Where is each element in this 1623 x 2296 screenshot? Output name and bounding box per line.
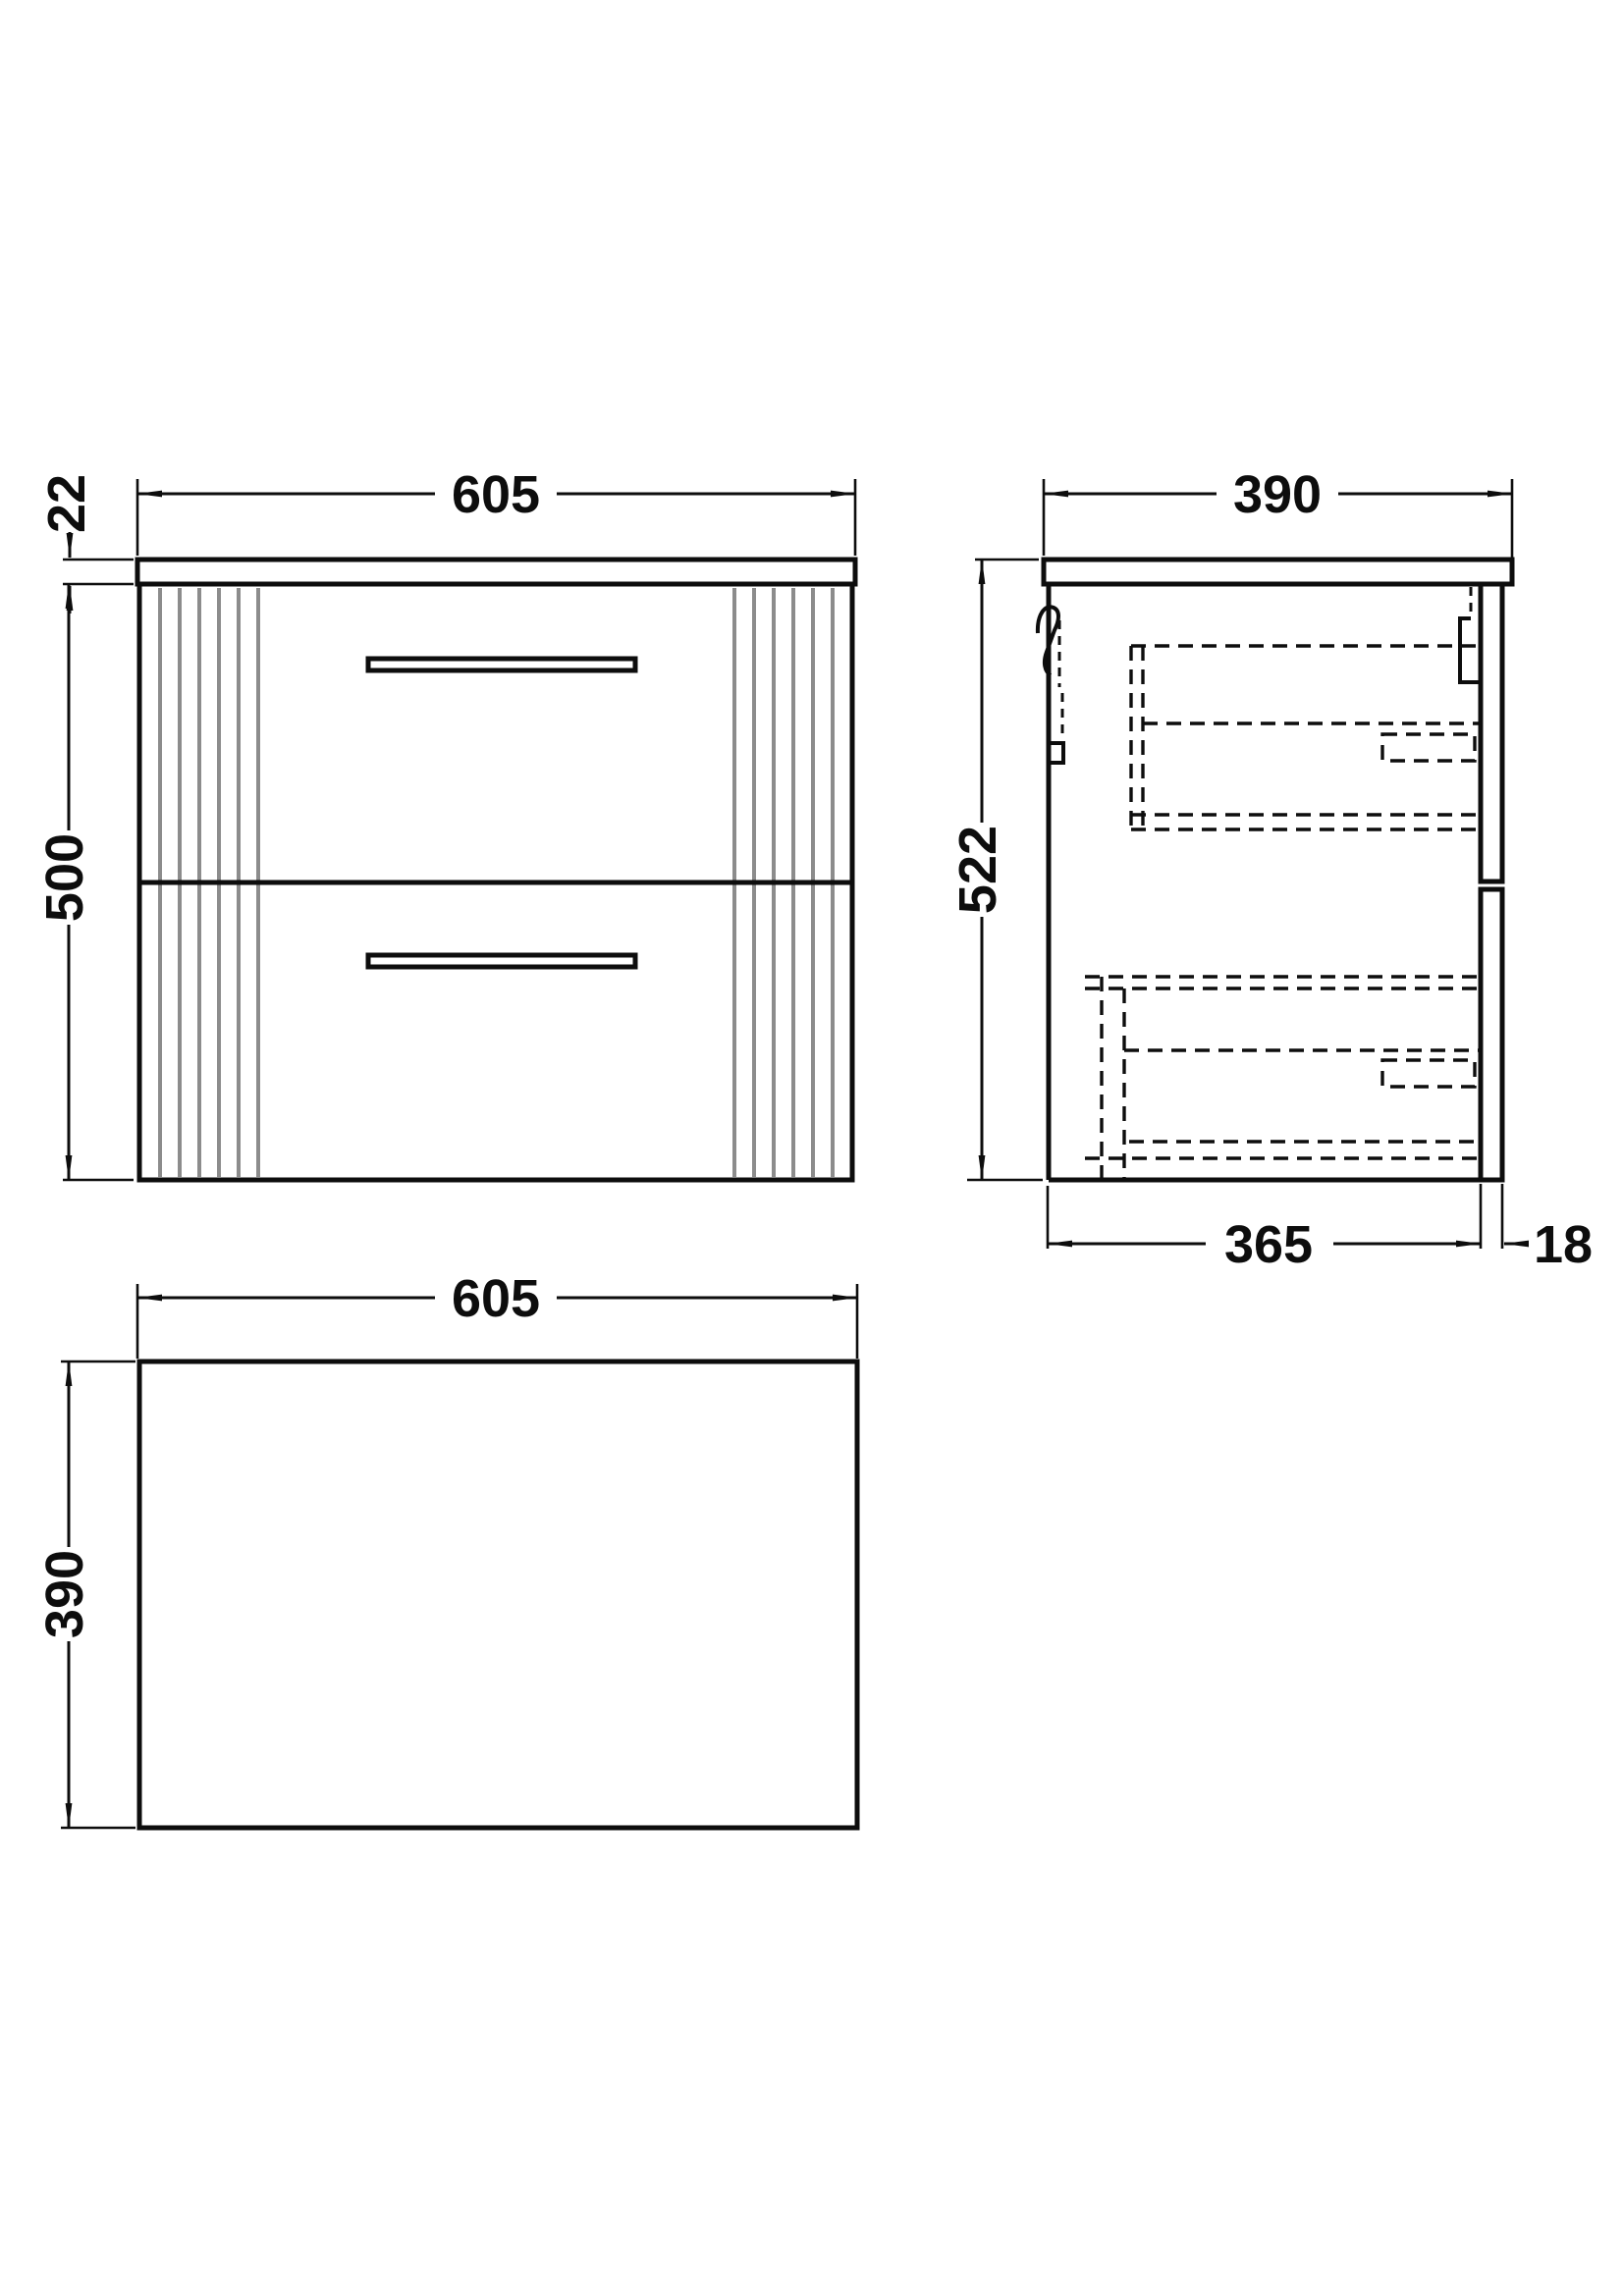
technical-drawing: 605 22 500 bbox=[0, 0, 1623, 2296]
plan-depth-dimension: 390 bbox=[35, 1362, 135, 1828]
front-worktop-thickness-dimension: 22 bbox=[37, 474, 134, 614]
side-upper-drawer-front bbox=[1481, 584, 1502, 881]
front-width-dimension: 605 bbox=[137, 465, 855, 556]
front-upper-drawer-handle bbox=[368, 659, 635, 670]
side-height-label: 522 bbox=[948, 826, 1007, 914]
front-view: 605 22 500 bbox=[35, 465, 855, 1180]
side-lower-drawer-hidden bbox=[1085, 977, 1481, 1178]
wall-hanger-bracket-hidden bbox=[1059, 620, 1062, 738]
side-body-depth-dimension: 365 bbox=[1048, 1184, 1502, 1274]
side-body-depth-label: 365 bbox=[1224, 1215, 1313, 1274]
side-upper-drawer-runner bbox=[1382, 734, 1475, 761]
side-lower-drawer-runner bbox=[1382, 1060, 1475, 1087]
front-height-label: 500 bbox=[35, 833, 94, 922]
side-worktop bbox=[1044, 560, 1512, 584]
plan-depth-label: 390 bbox=[35, 1550, 94, 1638]
front-worktop bbox=[137, 560, 855, 584]
side-height-dimension: 522 bbox=[948, 560, 1043, 1180]
side-front-thickness-dimension: 18 bbox=[1504, 1215, 1593, 1274]
plan-width-dimension: 605 bbox=[137, 1269, 857, 1359]
plan-width-label: 605 bbox=[452, 1269, 540, 1328]
side-lower-drawer-front bbox=[1481, 889, 1502, 1180]
front-height-dimension: 500 bbox=[35, 584, 134, 1180]
front-lower-drawer-handle bbox=[368, 955, 635, 967]
side-upper-drawer-hidden bbox=[1131, 646, 1481, 829]
plan-view: 605 390 bbox=[35, 1269, 857, 1828]
plan-worktop-outline bbox=[139, 1362, 857, 1828]
front-width-label: 605 bbox=[452, 465, 540, 524]
side-view: 390 522 365 18 bbox=[948, 465, 1593, 1274]
side-front-thickness-label: 18 bbox=[1534, 1215, 1593, 1274]
front-worktop-thickness-label: 22 bbox=[37, 474, 96, 533]
side-depth-label: 390 bbox=[1233, 465, 1322, 524]
drawing-sheet: 605 22 500 bbox=[0, 0, 1623, 2296]
side-front-rebate-detail bbox=[1460, 587, 1481, 682]
side-depth-dimension: 390 bbox=[1044, 465, 1512, 558]
